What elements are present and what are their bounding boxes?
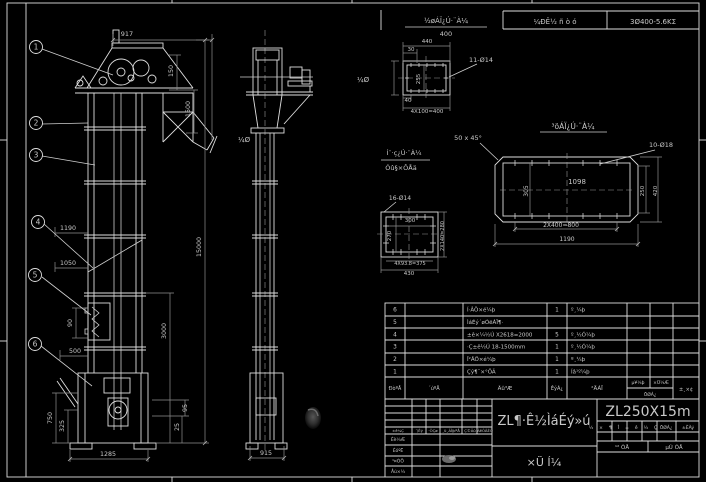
balloon-callouts: 123456 <box>29 41 45 351</box>
detail-c-title-1: Í¨·ç¿Ú·¨À¼ <box>386 148 422 157</box>
bom-cell-no: 2 <box>393 357 397 363</box>
dim-label: 150 <box>168 65 175 77</box>
dim-label: 95 <box>182 404 189 412</box>
detail-c-title-2: Óû§×ÔÅä <box>385 163 416 172</box>
dim-label: 915 <box>260 450 272 457</box>
sign-row-label: Éè¼Æ <box>391 435 406 443</box>
bom-cell-no: 5 <box>393 320 397 326</box>
rev-header: ·ÖÇø <box>428 428 438 433</box>
bom-cell-qty: 5 <box>555 332 559 338</box>
dim-label: 10-Ø18 <box>649 141 673 149</box>
balloon-number: 1 <box>34 43 39 52</box>
bom-header-code: ´úºÅ <box>428 385 440 392</box>
rev-header: ÄêÔÂÈÕ <box>477 428 493 433</box>
dim-label: 305 <box>523 185 530 197</box>
dim-label: 2X400=800 <box>543 222 579 229</box>
dim-label: 3000 <box>161 323 168 339</box>
detail-b-title: ³öÁÏ¿Ú·¨À¼ <box>552 122 596 131</box>
dim-label: 750 <box>47 412 54 424</box>
dim-label: 11-Ø14 <box>469 56 493 64</box>
bom-header-remark: ±¸×¢ <box>679 387 693 393</box>
dim-label: 325 <box>59 420 66 432</box>
bom-cell-name: ±ê×¼½Ú X2618=2000 <box>467 331 533 338</box>
text-layer: ½øÁÏ¿Ú·¨À¼ 400 ¼ÐÊ½ ñ ò ó 3Ø400-5.6ΚΣ ³ö… <box>385 16 694 469</box>
ghost-smudge <box>305 407 321 429</box>
detail-discharge-flange <box>480 132 662 247</box>
bom-cell-name: ·Ç±ê½Ú 18-1500mm <box>467 344 525 351</box>
dim-label: 1190 <box>559 236 574 243</box>
model-number: ZL250X15m <box>605 404 690 420</box>
bom-header-name: Ãû³Æ <box>498 385 513 392</box>
side-view <box>240 30 313 461</box>
stage-label: ½×¶Î±ê¼Ç <box>589 424 663 431</box>
bom-cell-no: 3 <box>393 345 397 351</box>
dim-label: 500 <box>69 348 81 355</box>
scale-label: ±ÈÀý <box>682 423 694 431</box>
weight-label: ÖØÁ¿ <box>660 424 673 431</box>
dim-label: 917 <box>121 30 133 38</box>
dim-label: 25 <box>174 423 181 431</box>
balloon-leaders <box>41 49 113 386</box>
sign-row-label: Åú×¼ <box>391 468 406 475</box>
bom-cell-qty: 1 <box>555 357 559 363</box>
balloon-number: 4 <box>36 218 41 227</box>
title-block-subtitle: ×Ü Í¼ <box>527 456 562 469</box>
bom-cell-material: º¸½Ó¼þ <box>571 344 595 351</box>
boot-section <box>57 373 156 449</box>
note-value: 400 <box>440 30 452 38</box>
dim-label: 255 <box>416 73 422 84</box>
dim-label: 1285 <box>100 451 116 458</box>
bom-cell-name: Î²ÂÖ×é¼þ <box>467 356 496 363</box>
dim-label: 1098 <box>568 178 586 186</box>
bom-header-no: ÐòºÅ <box>389 385 402 392</box>
rev-header: ¸ü¸ÄÎļþºÅ <box>442 428 460 433</box>
bom-cell-material: Íâ¹º¼þ <box>571 368 590 375</box>
dim-label: 420 <box>653 185 659 196</box>
bom-header-material: ²ÄÁÏ <box>591 385 603 392</box>
balloon-number: 5 <box>33 271 38 280</box>
title-block-title: ZL¶·Ê½ÌáÉý»ú <box>497 413 590 429</box>
bom-cell-qty: 1 <box>555 308 559 314</box>
bom-cell-qty: 1 <box>555 345 559 351</box>
dim-label: 1190 <box>60 225 76 232</box>
dim-label: 1500 <box>185 101 192 117</box>
dim-label: 40 <box>405 98 412 104</box>
bom-cell-qty: 1 <box>555 369 559 375</box>
bom-cell-no: 4 <box>393 332 397 338</box>
dim-label: 250 <box>640 185 646 196</box>
dim-label: 90 <box>67 319 74 327</box>
rev-header: Ç©Ãû <box>464 428 476 433</box>
dim-label: 50 x 45° <box>454 134 482 142</box>
front-view-joints <box>84 127 146 350</box>
balloon-number: 2 <box>34 119 39 128</box>
rev-header: ±ê¼Ç <box>392 428 404 433</box>
bom-cell-no: 6 <box>393 308 397 314</box>
dim-label: 4X100=400 <box>411 109 444 115</box>
sheet-label: µÚ ÕÅ <box>665 444 683 451</box>
detail-vent-flange <box>377 160 447 273</box>
cad-drawing-canvas[interactable]: ½øÁÏ¿Ú·¨À¼ 400 ¼ÐÊ½ ñ ò ó 3Ø400-5.6ΚΣ ³ö… <box>0 0 706 482</box>
bom-cell-name: Í·ÂÖ×é¼þ <box>467 307 496 314</box>
dim-label: 15000 <box>196 237 203 257</box>
dim-label: 30 <box>408 47 415 53</box>
bom-cell-material: º¸¼þ <box>571 356 586 363</box>
bom-cell-name: Çý¶¯×°ÖÃ <box>467 368 496 375</box>
dim-label: ¼Ø <box>238 136 251 144</box>
bom-header-weight: ÖØÁ¿ <box>644 391 657 398</box>
bom-cell-name: ÌáÉý´øÓëÁÏ¶· <box>467 318 503 326</box>
dim-label: 270 <box>387 230 393 241</box>
bom-cell-material: º¸½Ó¼þ <box>571 331 595 338</box>
bom-table-lines <box>385 303 699 399</box>
dim-label: 4X93.8=375 <box>394 261 425 267</box>
front-view-dims <box>52 34 214 462</box>
sign-row-label: ÉóºË <box>393 446 404 454</box>
sign-row-label: ¹¤ÒÕ <box>392 458 404 465</box>
dim-label: ¼Ø <box>357 76 370 84</box>
bom-header-total: ×Ü¼Æ <box>653 379 669 386</box>
cad-linework: ½øÁÏ¿Ú·¨À¼ 400 ¼ÐÊ½ ñ ò ó 3Ø400-5.6ΚΣ ³ö… <box>0 0 706 482</box>
bom-header-unit: µ¥¼þ <box>632 380 645 386</box>
top-bar-field-right: 3Ø400-5.6ΚΣ <box>630 18 676 26</box>
sheets-label: ¹² ÕÅ <box>615 444 629 451</box>
bom-cell-no: 1 <box>393 369 397 375</box>
dim-label: 2X140=280 <box>440 221 446 251</box>
front-view <box>57 30 217 449</box>
top-bar-field-left: ¼ÐÊ½ ñ ò ó <box>533 17 576 26</box>
dim-label: 300 <box>405 218 416 224</box>
bom-header-qty: ÊýÁ¿ <box>551 384 564 392</box>
note-title: ½øÁÏ¿Ú·¨À¼ <box>424 16 468 25</box>
balloon-number: 6 <box>33 340 38 349</box>
title-block-small-text: ±ê¼Ç´¦Êý·ÖÇø¸ü¸ÄÎļþºÅÇ©ÃûÄêÔÂÈÕÉè¼ÆÉóºË¹… <box>391 428 493 475</box>
dim-label: 430 <box>404 271 415 277</box>
dim-label: 16-Ø14 <box>389 195 411 202</box>
rev-header: ´¦Êý <box>415 428 424 433</box>
dim-label: 1050 <box>60 260 76 267</box>
bom-cell-material: º¸¼þ <box>571 307 586 314</box>
balloon-number: 3 <box>34 151 39 160</box>
feed-inlet <box>85 303 110 340</box>
dim-label: 440 <box>422 39 433 45</box>
